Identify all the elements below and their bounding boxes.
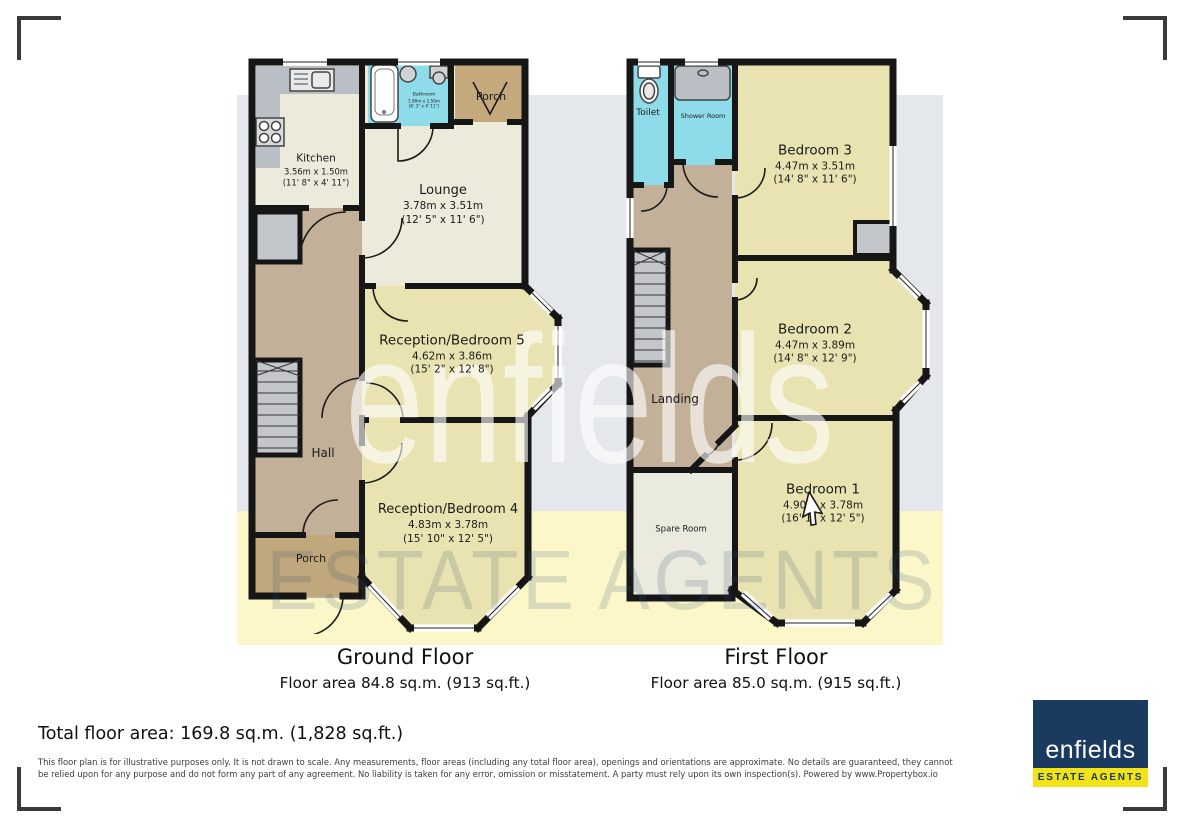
room-label-bedroom-3: Bedroom 3 4.47m x 3.51m (14' 8" x 11' 6"… (773, 143, 856, 188)
disclaimer-text: This floor plan is for illustrative purp… (38, 756, 960, 780)
stairs (632, 250, 668, 365)
ground-floor-caption: Ground Floor Floor area 84.8 sq.m. (913 … (280, 645, 531, 692)
logo-brand-block: enfields (1033, 700, 1148, 768)
hob-icon (256, 118, 284, 146)
total-floor-area: Total floor area: 169.8 sq.m. (1,828 sq.… (38, 724, 403, 744)
enfields-logo: enfields ESTATE AGENTS (1033, 700, 1148, 787)
logo-brand-text: enfields (1045, 736, 1135, 768)
room-label-toilet: Toilet (636, 108, 660, 120)
first-floor-area: Floor area 85.0 sq.m. (915 sq.ft.) (651, 674, 902, 692)
logo-tagline-text: ESTATE AGENTS (1038, 772, 1143, 783)
toilet-icon (638, 66, 660, 103)
room-label-porch-bottom: Porch (296, 552, 326, 566)
room-label-spare-room: Spare Room (655, 524, 706, 535)
crop-mark-top-left-icon (17, 16, 61, 60)
chimney-breast (855, 222, 893, 255)
room-label-kitchen: Kitchen 3.56m x 1.50m (11' 8" x 4' 11") (283, 152, 349, 187)
room-label-landing: Landing (651, 392, 699, 408)
room-label-lounge: Lounge 3.78m x 3.51m (12' 5" x 11' 6") (401, 183, 484, 227)
ground-floor-area: Floor area 84.8 sq.m. (913 sq.ft.) (280, 674, 531, 692)
crop-mark-top-right-icon (1123, 16, 1167, 60)
first-floor-caption: First Floor Floor area 85.0 sq.m. (915 s… (651, 645, 902, 692)
room-label-shower-room: Shower Room (681, 112, 726, 120)
first-floor-title: First Floor (651, 645, 902, 669)
bathtub-icon (371, 65, 398, 122)
floor-plan-page: enfields ESTATE AGENTS Kitchen 3.56m x 1… (0, 0, 1181, 826)
shower-tray-icon (675, 66, 730, 100)
room-label-reception-bedroom-5: Reception/Bedroom 5 4.62m x 3.86m (15' 2… (379, 333, 525, 378)
under-stairs-closet (255, 212, 300, 262)
room-label-hall: Hall (311, 446, 334, 462)
room-label-reception-bedroom-4: Reception/Bedroom 4 4.83m x 3.78m (15' 1… (378, 502, 518, 546)
ground-floor-title: Ground Floor (280, 645, 531, 669)
stairs (255, 360, 300, 455)
logo-tagline-block: ESTATE AGENTS (1033, 768, 1148, 787)
room-label-bathroom: Bathroom 1.90m x 1.50m (6' 3" x 4' 11") (408, 93, 440, 110)
room-label-bedroom-2: Bedroom 2 4.47m x 3.89m (14' 8" x 12' 9"… (773, 322, 856, 367)
room-label-porch-top: Porch (476, 90, 506, 104)
